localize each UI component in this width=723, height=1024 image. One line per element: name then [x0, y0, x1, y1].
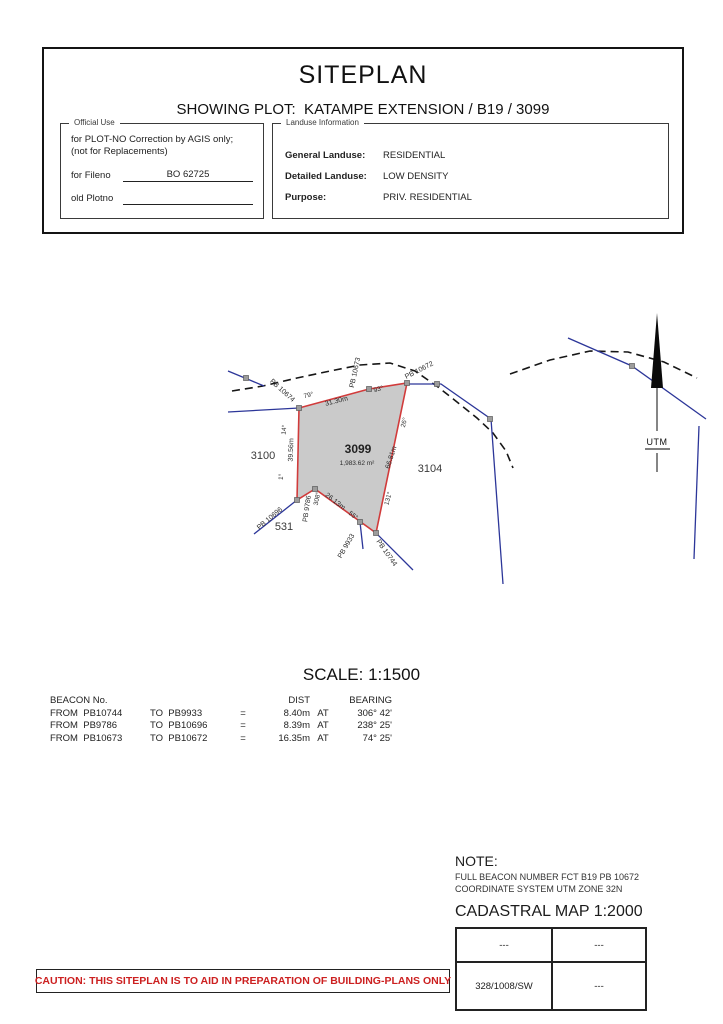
edge-dist-39-56m: 39.56m	[288, 438, 296, 462]
beacon-distance-table: BEACON No. DIST BEARING FROM PB10744 TO …	[50, 695, 392, 745]
beacon-label-pb9786: PB 9786	[302, 495, 313, 523]
beacon-row-eq: =	[232, 733, 254, 746]
beacon-table-header-spacer	[232, 695, 254, 708]
angle-79: 79°	[303, 390, 315, 400]
detailed-landuse-value: LOW DENSITY	[383, 171, 448, 182]
boundary-line	[360, 522, 363, 549]
plot-number-3099: 3099	[345, 442, 372, 456]
beacon-label-pb9933: PB 9933	[337, 533, 357, 560]
cadastral-cell: ---	[456, 928, 552, 962]
scale-label: SCALE: 1:1500	[0, 665, 723, 685]
caution-text: CAUTION: THIS SITEPLAN IS TO AID IN PREP…	[35, 975, 451, 987]
plot-label-3104: 3104	[418, 463, 442, 475]
official-use-line2: (not for Replacements)	[71, 146, 253, 158]
cadastral-table: --- --- 328/1008/SW ---	[455, 927, 647, 1011]
beacon-table-header-dist: DIST	[254, 695, 310, 708]
table-row: 328/1008/SW ---	[456, 962, 646, 1010]
header-frame: SITEPLAN SHOWING PLOT: KATAMPE EXTENSION…	[42, 47, 684, 234]
angle-308: 308°	[312, 491, 323, 506]
beacon-row-dist: 16.35m	[254, 733, 310, 746]
beacon-row-at: AT	[310, 708, 336, 721]
old-plotno-value-field	[123, 193, 253, 205]
beacon-row-bearing: 238° 25'	[336, 720, 392, 733]
beacon-row-dist: 8.40m	[254, 708, 310, 721]
cadastral-cell: ---	[552, 928, 646, 962]
fileno-value-field: BO 62725	[123, 169, 253, 182]
angle-1: 1°	[277, 473, 286, 480]
boundary-line	[694, 426, 699, 559]
note-line2: COORDINATE SYSTEM UTM ZONE 32N	[455, 883, 665, 895]
beacon-table-header-bearing: BEARING	[336, 695, 392, 708]
beacon-table-header-no: BEACON No.	[50, 695, 150, 708]
beacon-row-bearing: 74° 25'	[336, 733, 392, 746]
beacon-row-eq: =	[232, 708, 254, 721]
old-plotno-label: old Plotno	[71, 193, 123, 205]
cadastral-map-title: CADASTRAL MAP 1:2000	[455, 903, 665, 921]
north-arrow	[645, 313, 670, 472]
note-line1: FULL BEACON NUMBER FCT B19 PB 10672	[455, 871, 665, 883]
note-heading: NOTE:	[455, 853, 665, 869]
boundary-line	[407, 384, 503, 584]
beacon-label-pb10674: PB 10674	[268, 378, 296, 404]
siteplan-document: { "page": { "title": "SITEPLAN", "subtit…	[0, 0, 723, 1024]
beacon-row-to: TO PB10696	[150, 720, 232, 733]
utm-label: UTM	[647, 437, 668, 447]
site-map: UTM PB 10674 PB 10673 PB 10672 PB 10696 …	[0, 300, 723, 600]
beacon-row-dist: 8.39m	[254, 720, 310, 733]
fileno-label: for Fileno	[71, 170, 123, 182]
road-dashed-line-right	[510, 351, 697, 378]
cadastral-cell: 328/1008/SW	[456, 962, 552, 1010]
general-landuse-label: General Landuse:	[285, 150, 383, 161]
beacon-label-pb10673: PB 10673	[349, 357, 362, 389]
landuse-legend: Landuse Information	[281, 118, 364, 127]
purpose-label: Purpose:	[285, 192, 383, 203]
beacon-row-from: FROM PB10673	[50, 733, 150, 746]
beacon-table-header-spacer	[310, 695, 336, 708]
general-landuse-value: RESIDENTIAL	[383, 150, 445, 161]
purpose-value: PRIV. RESIDENTIAL	[383, 192, 472, 203]
beacon-row-eq: =	[232, 720, 254, 733]
angle-14: 14°	[280, 424, 289, 435]
official-use-box: Official Use for PLOT-NO Correction by A…	[60, 123, 264, 219]
plot-area-label: 1,983.62 m²	[340, 460, 376, 467]
cadastral-cell: ---	[552, 962, 646, 1010]
beacon-row-at: AT	[310, 733, 336, 746]
beacon-row-at: AT	[310, 720, 336, 733]
boundary-line	[568, 338, 706, 419]
detailed-landuse-label: Detailed Landuse:	[285, 171, 383, 182]
boundary-line	[228, 408, 299, 412]
landuse-info-box: Landuse Information General Landuse: RES…	[272, 123, 669, 219]
beacon-row-from: FROM PB10744	[50, 708, 150, 721]
table-row: --- ---	[456, 928, 646, 962]
plot-label-531: 531	[275, 521, 293, 533]
caution-box: CAUTION: THIS SITEPLAN IS TO AID IN PREP…	[36, 969, 450, 993]
beacon-table-header-spacer	[150, 695, 232, 708]
official-use-line1: for PLOT-NO Correction by AGIS only;	[71, 134, 253, 146]
beacon-row-from: FROM PB9786	[50, 720, 150, 733]
page-subtitle: SHOWING PLOT: KATAMPE EXTENSION / B19 / …	[44, 101, 682, 118]
beacon-row-bearing: 306° 42'	[336, 708, 392, 721]
beacon-label-pb10672: PB 10672	[404, 361, 435, 381]
beacon-row-to: TO PB9933	[150, 708, 232, 721]
beacon-row-to: TO PB10672	[150, 733, 232, 746]
plot-label-3100: 3100	[251, 450, 275, 462]
page-title: SITEPLAN	[44, 61, 682, 90]
note-block: NOTE: FULL BEACON NUMBER FCT B19 PB 1067…	[455, 853, 665, 1011]
official-use-legend: Official Use	[69, 118, 120, 127]
